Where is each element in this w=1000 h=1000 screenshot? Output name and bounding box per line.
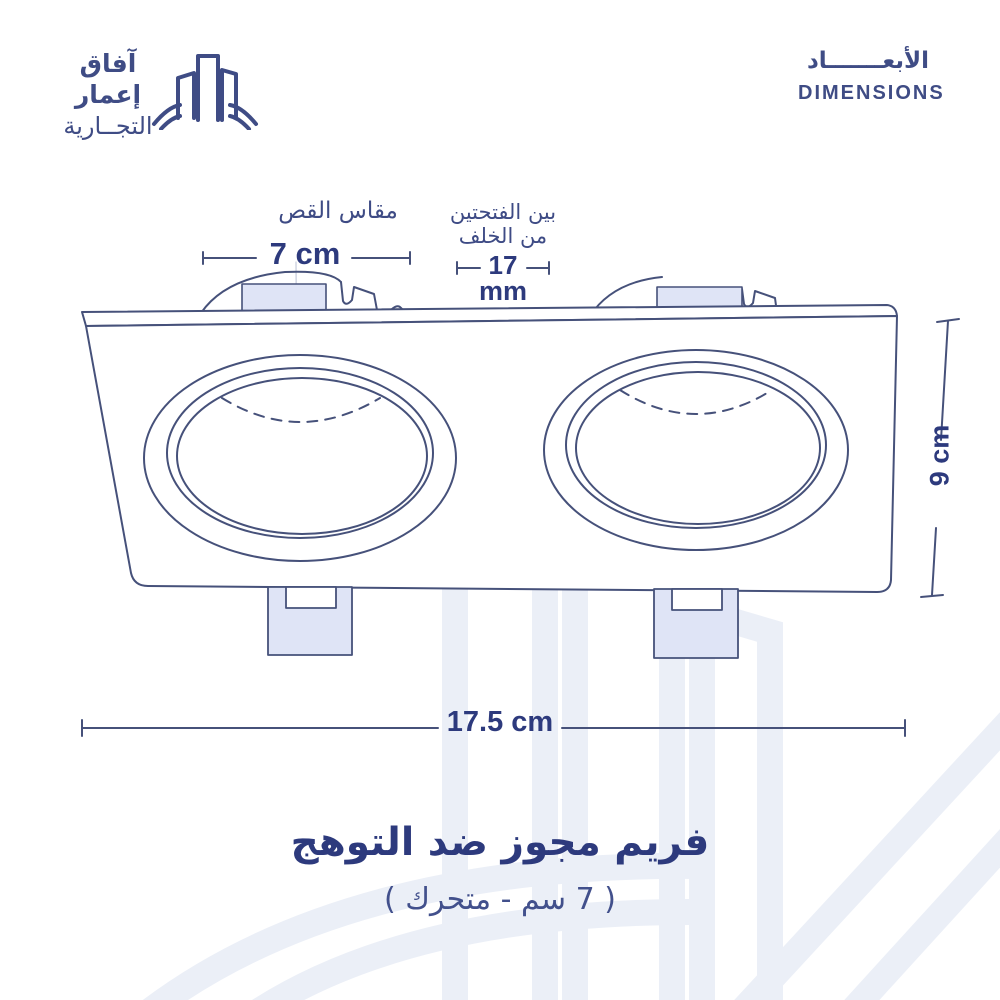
between-holes-label: بين الفتحتين من الخلف	[438, 200, 568, 248]
bottom-clip-left	[268, 587, 352, 655]
between-holes-unit: mm	[468, 276, 538, 307]
product-subtitle: ( 7 سم - متحرك )	[250, 882, 750, 917]
cut-size-value: 7 cm	[260, 236, 350, 272]
brand-name-line2: التجــارية	[58, 111, 158, 142]
brand-logo-icon	[150, 40, 260, 130]
cut-size-label: مقاس القص	[248, 198, 428, 224]
between-holes-label-line1: بين الفتحتين	[438, 200, 568, 224]
between-holes-label-line2: من الخلف	[438, 224, 568, 248]
frame-drawing	[82, 262, 897, 658]
width-value: 17.5 cm	[440, 706, 560, 739]
product-title: فريم مجوز ضد التوهج	[200, 820, 800, 865]
height-value: 9 cm	[925, 414, 956, 498]
brand-name-line1: آفاق إعمار	[58, 48, 158, 111]
dimensions-heading-ar: الأبعـــــــاد	[798, 48, 938, 76]
dimensions-heading: الأبعـــــــاد DIMENSIONS	[798, 48, 938, 105]
dimensions-infographic: آفاق إعمار التجــارية الأبعـــــــاد DIM…	[0, 0, 1000, 1000]
brand-logo-text: آفاق إعمار التجــارية	[58, 48, 158, 142]
frame-front-face	[86, 316, 897, 592]
dimensions-heading-en: DIMENSIONS	[798, 82, 938, 105]
bottom-clip-right	[654, 589, 738, 658]
